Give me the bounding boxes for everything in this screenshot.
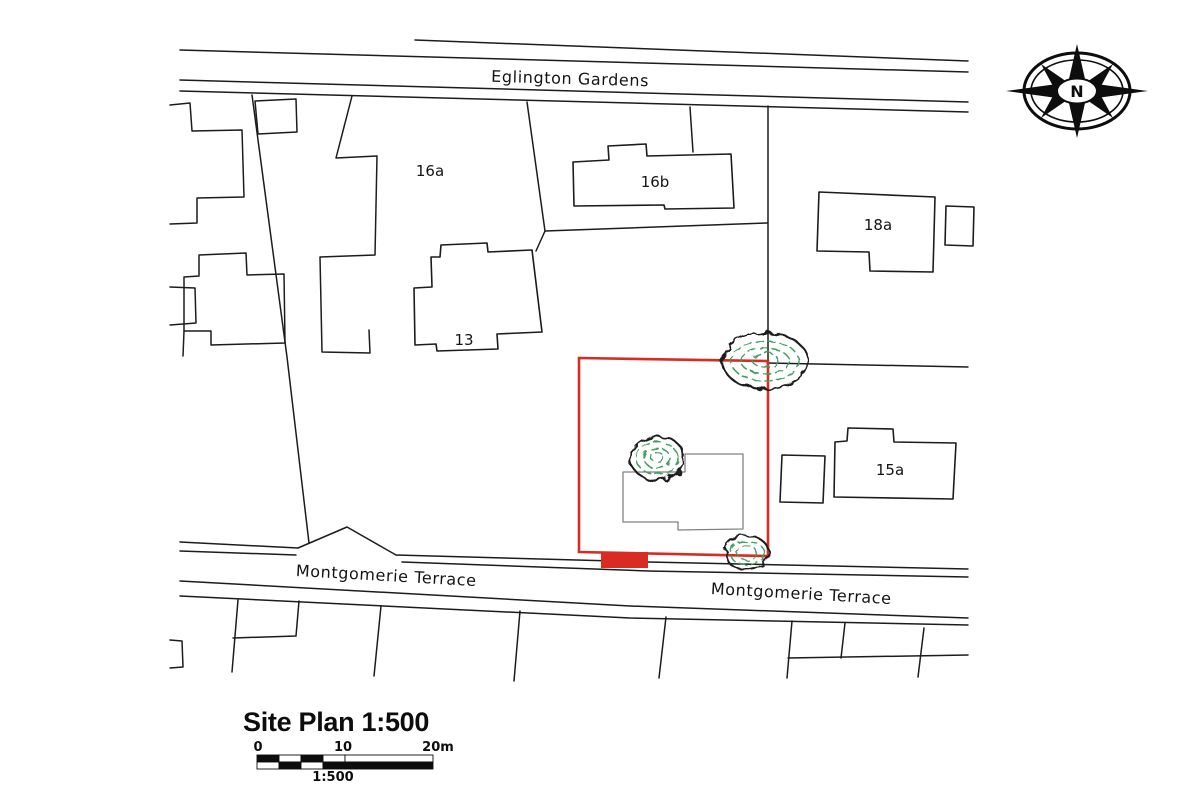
street-label-eglington-gardens: Eglington Gardens <box>491 67 649 90</box>
compass-north-icon: N <box>1006 44 1148 138</box>
building-13-footprint <box>414 243 542 351</box>
site-plan-page: Eglington Gardens Montgomerie Terrace Mo… <box>0 0 1200 800</box>
scale-twenty-label: 20m <box>422 740 454 755</box>
plot-label-16a: 16a <box>416 162 444 180</box>
map-labels: Eglington Gardens Montgomerie Terrace Mo… <box>295 67 904 608</box>
site-access-marker <box>601 552 648 568</box>
plot-label-15a: 15a <box>876 461 904 479</box>
scale-ratio-label: 1:500 <box>312 770 353 785</box>
trees <box>630 333 808 570</box>
scale-ten-label: 10 <box>334 740 352 755</box>
tree-symbol <box>630 436 684 480</box>
road-verge-bump <box>298 527 396 555</box>
street-label-montgomerie-terrace-left: Montgomerie Terrace <box>295 561 477 590</box>
page-title: Site Plan 1:500 <box>243 707 429 737</box>
outbuilding-right-of-18a <box>945 206 974 246</box>
outbuilding-left-of-15a <box>780 455 825 503</box>
plot-label-18a: 18a <box>864 216 892 234</box>
scale-zero-label: 0 <box>253 740 262 755</box>
street-label-montgomerie-terrace-right: Montgomerie Terrace <box>710 579 892 608</box>
title-block: Site Plan 1:500 <box>243 707 429 737</box>
compass-north-label: N <box>1070 82 1083 101</box>
site-plan-drawing: Eglington Gardens Montgomerie Terrace Mo… <box>0 0 1200 800</box>
plot-label-16b: 16b <box>641 173 670 191</box>
scale-bar: 0 10 20m 1:500 <box>253 740 453 785</box>
plot-label-13: 13 <box>454 331 473 349</box>
